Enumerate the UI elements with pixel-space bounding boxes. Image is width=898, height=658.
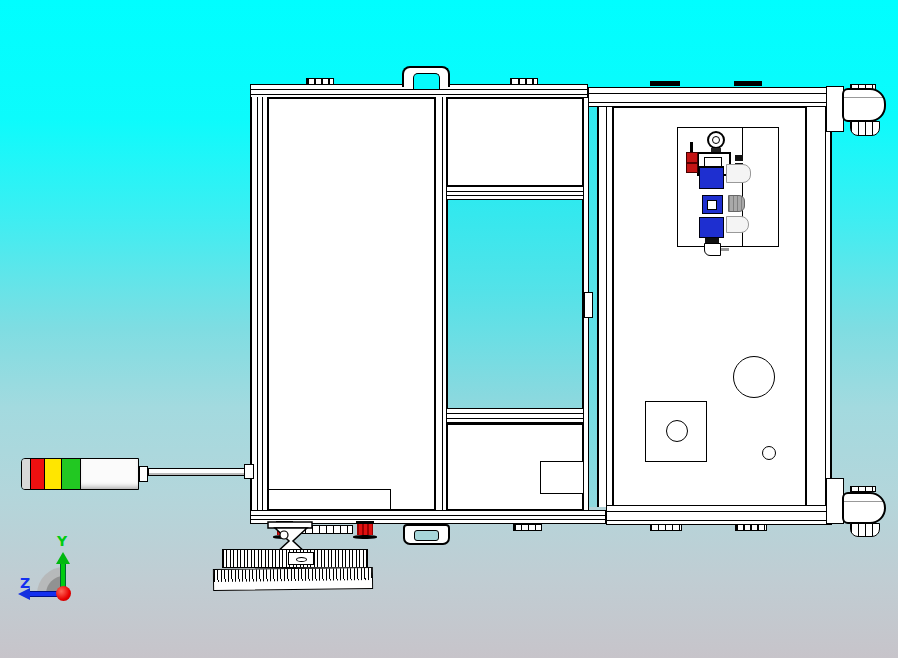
right-frame-column [597, 107, 614, 507]
led-bar-lower [213, 567, 373, 591]
left-panel-step-edge [390, 489, 391, 510]
panel-cutout [540, 461, 583, 494]
air-cylinder-gray [728, 195, 745, 212]
regulator-gauge-center [712, 136, 720, 144]
elbow-fitting [704, 243, 721, 256]
led-bar-gap-slot [296, 557, 307, 562]
solenoid-block-upper [699, 166, 724, 189]
tower-segment-green [62, 459, 81, 489]
z-axis-label: Z [20, 576, 30, 590]
bottom-rail-right [606, 505, 832, 525]
door-latch-handle[interactable] [584, 292, 593, 318]
foot-flange [353, 535, 377, 539]
small-port-hole [762, 446, 776, 460]
top-rail-right [588, 87, 832, 107]
hinge-tab-bottom-right-2 [735, 524, 767, 531]
valve-pin [690, 142, 693, 152]
large-port-hole [733, 356, 775, 398]
clamp-tab-top-right-2 [734, 81, 762, 86]
y-axis-arrowhead [56, 552, 70, 564]
center-open-bay [447, 200, 583, 408]
clamp-tab-top-right-1 [650, 81, 680, 86]
signal-tower-body [21, 458, 139, 490]
air-cylinder-lower [726, 216, 749, 233]
tower-arm-rod [148, 468, 245, 476]
tower-cap [22, 459, 31, 489]
tower-segment-red [31, 459, 45, 489]
middle-rail-upper [446, 186, 584, 200]
bottom-handle [403, 524, 450, 545]
cad-viewport[interactable]: Y Z [0, 0, 898, 658]
right-side-wall [806, 107, 832, 507]
hinge-tab-top-mid [510, 78, 538, 85]
hinge-tab-top-left [306, 78, 334, 85]
air-cylinder-upper [726, 164, 751, 183]
led-bar-gap [288, 552, 314, 565]
solenoid-block-lower [699, 217, 724, 238]
middle-rail-lower [446, 408, 584, 423]
red-knob [686, 152, 698, 173]
z-axis-shaft [30, 591, 58, 597]
access-hole [666, 420, 688, 442]
upper-window-panel[interactable] [446, 97, 584, 187]
fitting-square-port [707, 200, 717, 210]
tower-base-body [81, 459, 138, 489]
caster-hub [850, 121, 880, 136]
left-door-panel[interactable] [267, 97, 436, 511]
tower-arm-fitting [244, 464, 254, 479]
y-axis-label: Y [57, 534, 67, 548]
hinge-tab-bottom-right-1 [650, 524, 682, 531]
tower-neck [139, 466, 148, 482]
left-panel-step-line [269, 489, 391, 490]
caster-wheel [842, 492, 886, 524]
bottom-handle-hole [414, 530, 439, 541]
elbow-outlet [721, 248, 729, 251]
foot-body [357, 524, 373, 535]
hinge-tab-bottom-mid [513, 524, 542, 531]
origin-sphere [56, 586, 71, 601]
tower-segment-yellow [45, 459, 62, 489]
caster-hub [850, 523, 880, 537]
caster-wheel [842, 88, 886, 122]
top-handle [402, 66, 450, 87]
top-handle-hole [413, 73, 440, 89]
